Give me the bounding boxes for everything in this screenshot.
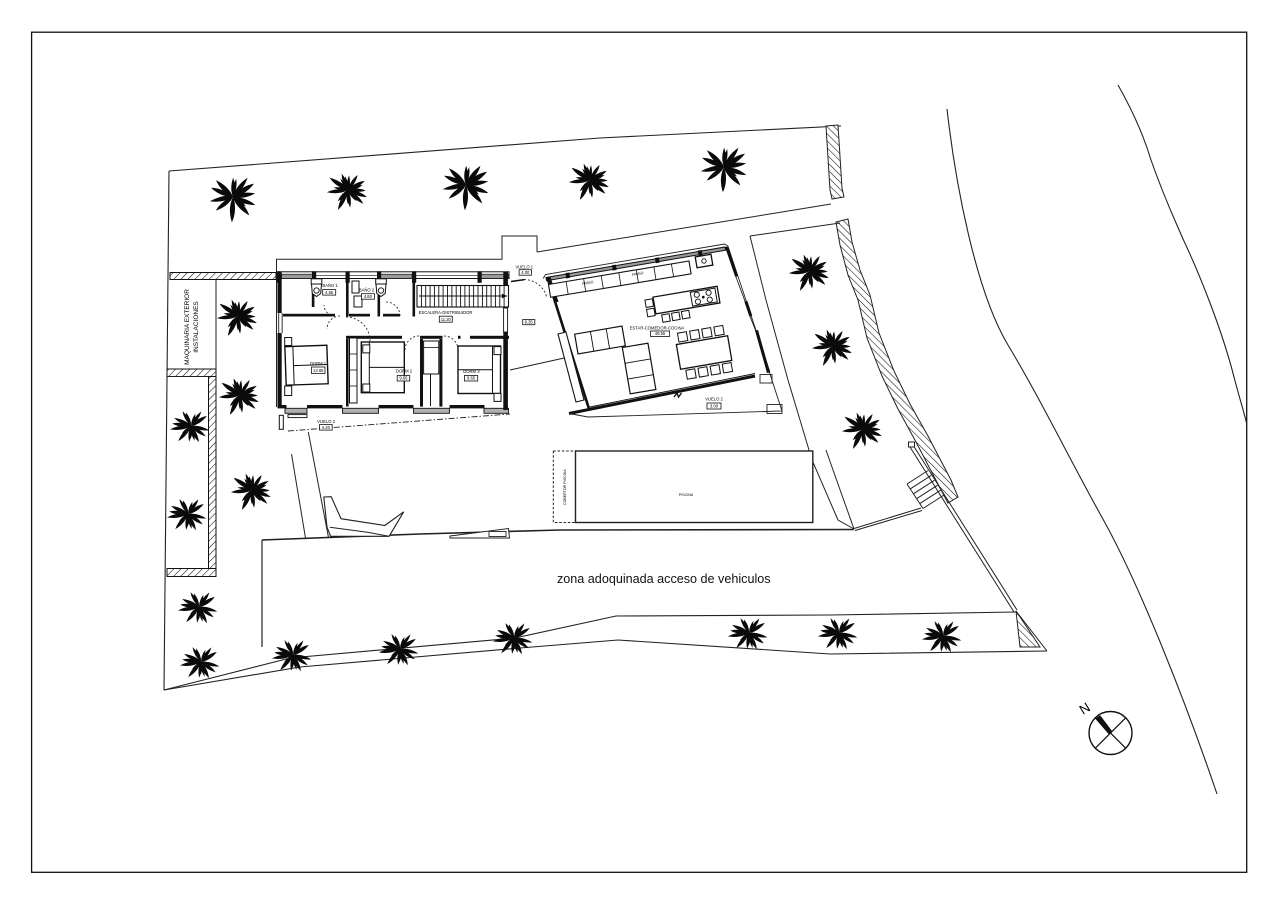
svg-text:4.20: 4.20 bbox=[322, 425, 331, 430]
svg-text:DORM 1: DORM 1 bbox=[310, 361, 327, 366]
svg-text:4.55: 4.55 bbox=[325, 290, 334, 295]
svg-text:ESTAR-COMEDOR-COCINA: ESTAR-COMEDOR-COCINA bbox=[630, 326, 685, 331]
svg-text:BAÑO 1: BAÑO 1 bbox=[322, 283, 338, 288]
svg-text:4.00: 4.00 bbox=[521, 270, 530, 275]
svg-text:VUELO 2: VUELO 2 bbox=[705, 397, 723, 402]
svg-text:BAÑO 2: BAÑO 2 bbox=[359, 288, 375, 293]
svg-text:DORM 3: DORM 3 bbox=[463, 369, 480, 374]
svg-text:3.00: 3.00 bbox=[710, 404, 719, 409]
svg-text:VUELO 1: VUELO 1 bbox=[515, 265, 533, 270]
svg-text:9.65: 9.65 bbox=[399, 376, 408, 381]
svg-text:zona adoquinada acceso de vehi: zona adoquinada acceso de vehiculos bbox=[557, 572, 771, 586]
svg-text:13.65: 13.65 bbox=[313, 368, 324, 373]
svg-text:MAQUINARIA EXTERIOR: MAQUINARIA EXTERIOR bbox=[184, 289, 191, 365]
svg-text:PISCINA: PISCINA bbox=[679, 493, 694, 497]
svg-text:11.20: 11.20 bbox=[441, 317, 452, 322]
svg-text:49.55: 49.55 bbox=[655, 331, 666, 336]
svg-text:COBERTOR PISCINA: COBERTOR PISCINA bbox=[563, 469, 567, 505]
svg-text:9.65: 9.65 bbox=[467, 376, 476, 381]
svg-text:DORM 2: DORM 2 bbox=[396, 368, 413, 373]
svg-text:4.60: 4.60 bbox=[364, 294, 373, 299]
svg-text:INSTALACIONES: INSTALACIONES bbox=[193, 301, 200, 353]
svg-text:9.35: 9.35 bbox=[525, 320, 534, 325]
svg-text:VUELO 3: VUELO 3 bbox=[317, 419, 335, 424]
svg-text:ESCALERA-DISTRIBUIDOR: ESCALERA-DISTRIBUIDOR bbox=[419, 310, 473, 315]
